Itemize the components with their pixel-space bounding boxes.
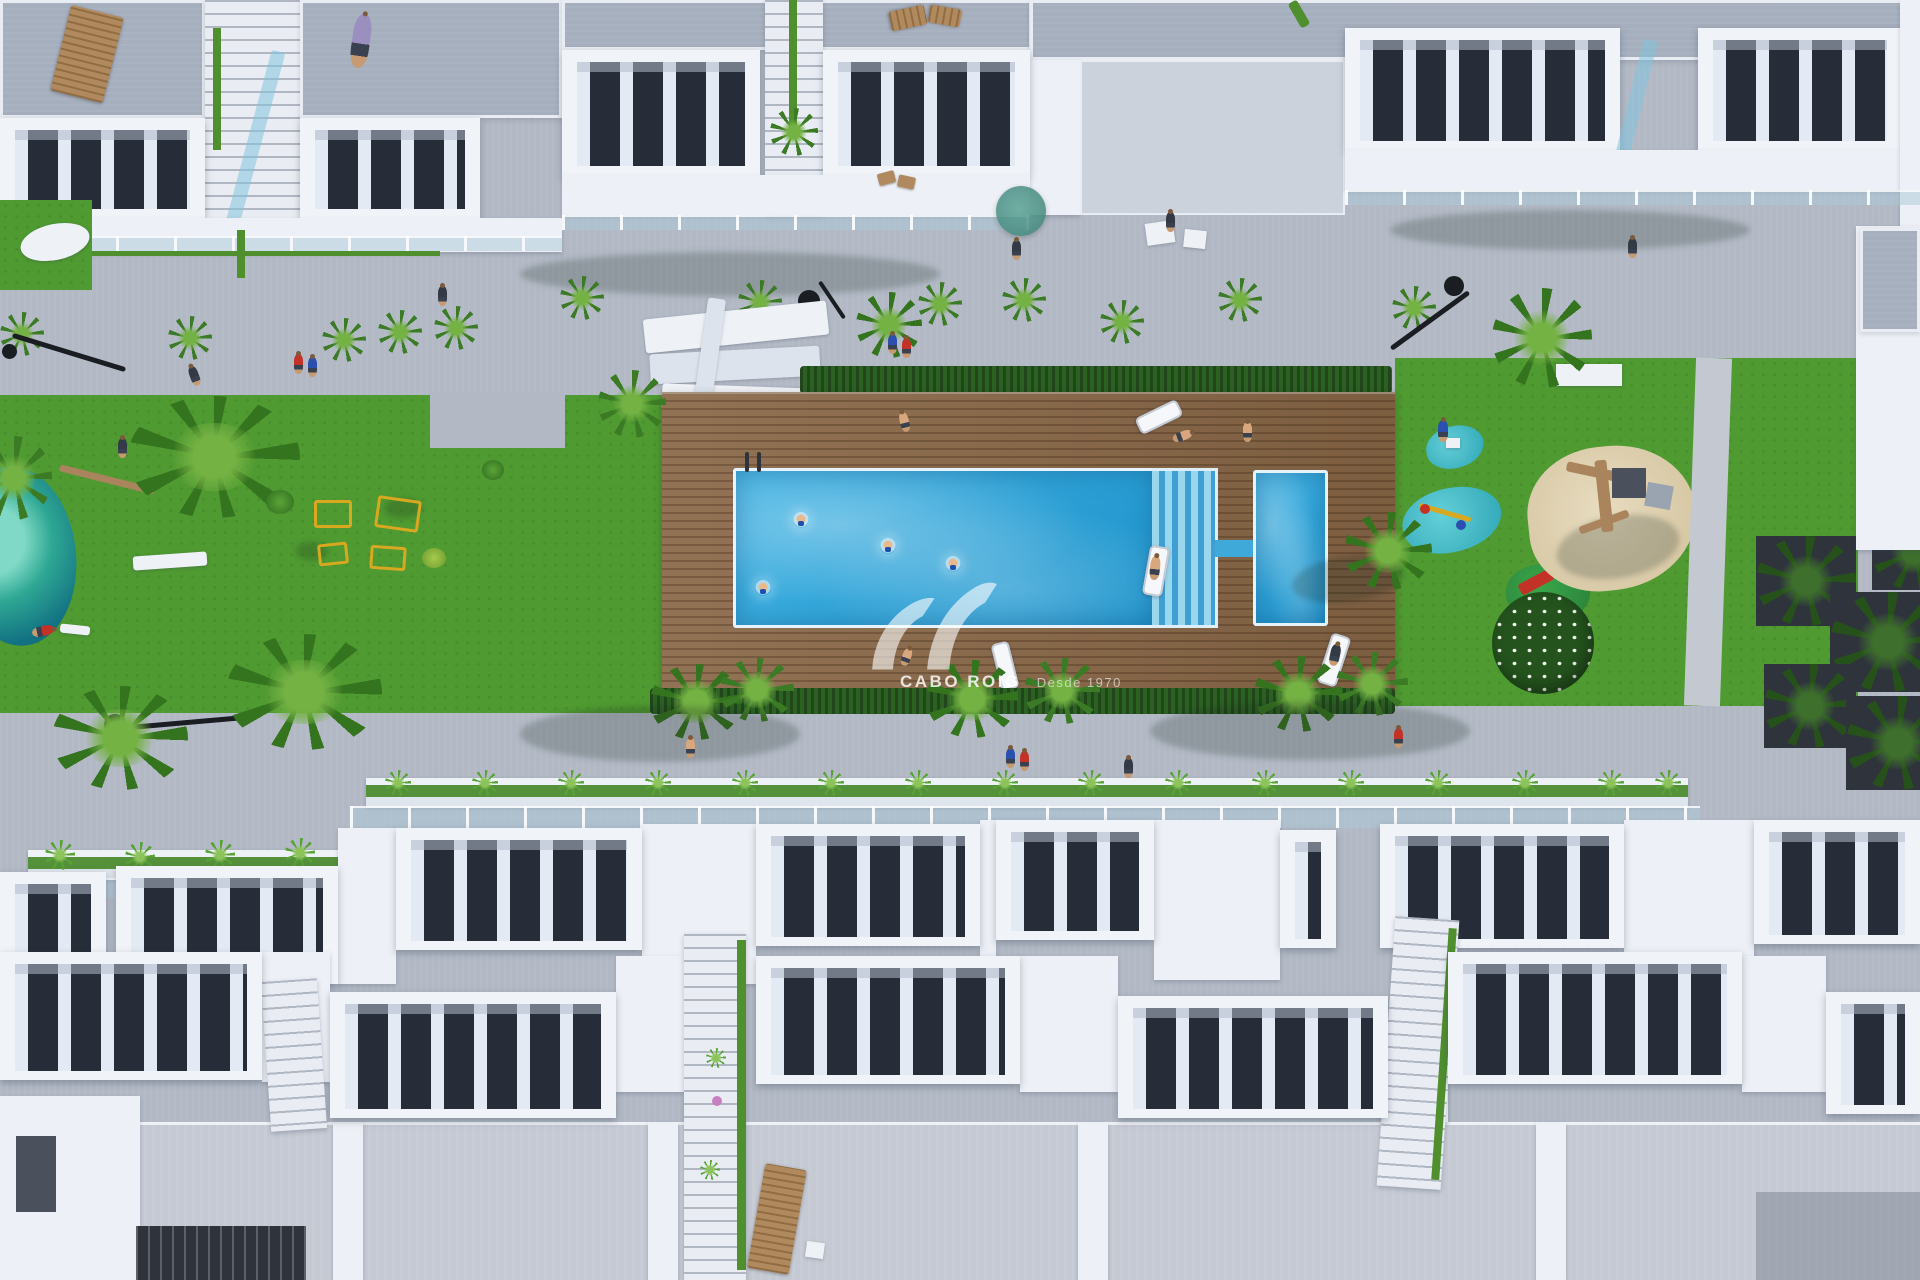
pedestrian (1394, 728, 1403, 748)
planter-palm (472, 770, 498, 796)
pedestrian (118, 438, 127, 458)
palm-bush (322, 318, 366, 362)
roof-terrace (1860, 228, 1920, 332)
planter-strip (213, 28, 221, 150)
person-on-bench (438, 286, 447, 306)
balcony (756, 956, 1020, 1084)
palm-bush (1100, 300, 1144, 344)
house-wall (616, 956, 684, 1092)
stairwell-steps (136, 1226, 306, 1280)
balcony (1754, 820, 1920, 944)
stairwell (16, 1136, 56, 1212)
parasol (996, 186, 1046, 236)
palm-bush (918, 282, 962, 326)
exercise-frame (314, 500, 352, 528)
palm-tree (1846, 696, 1920, 790)
shrub (422, 548, 446, 568)
house-wall (1742, 956, 1826, 1092)
palm-tree (52, 686, 188, 790)
planter-palm (285, 838, 315, 868)
pool-ladder (745, 452, 749, 472)
exercise-frame (317, 541, 349, 566)
balcony (1280, 830, 1336, 948)
exercise-frame (369, 545, 407, 571)
corner-shadow (1756, 1192, 1920, 1280)
swimmer (945, 556, 961, 572)
planter-palm (385, 770, 411, 796)
pool-ladder (757, 452, 761, 472)
balcony (1698, 28, 1902, 150)
balcony (1118, 996, 1388, 1118)
planter-palm (1252, 770, 1278, 796)
stair-plant (706, 1048, 726, 1068)
palm-tree (1492, 288, 1592, 388)
hedge (800, 366, 1392, 394)
house-wall (1020, 956, 1118, 1092)
pedestrian (1006, 748, 1015, 768)
planter-palm (1425, 770, 1451, 796)
palm-bush (434, 306, 478, 350)
building-base (562, 175, 1030, 215)
palm-top (770, 108, 818, 156)
aerial-render: CABO ROIG Desde 1970 (0, 0, 1920, 1280)
side-table (805, 1241, 825, 1259)
glass-railing (562, 215, 1030, 230)
house-wall (980, 820, 996, 970)
play-equipment (1446, 438, 1460, 448)
building-wall (1900, 0, 1920, 250)
planter-palm (905, 770, 931, 796)
balcony (396, 828, 642, 950)
planter-palm (992, 770, 1018, 796)
roof-terrace (300, 0, 562, 118)
planter-palm (1655, 770, 1681, 796)
upper-terrace (1080, 60, 1345, 215)
planter-palm (645, 770, 671, 796)
pedestrian (1012, 240, 1021, 260)
watermark: CABO ROIG Desde 1970 (858, 576, 1098, 692)
balcony (330, 992, 616, 1118)
balcony (823, 50, 1030, 175)
planter-strip (237, 230, 245, 278)
house-wall (1154, 820, 1280, 980)
planter-palm (1338, 770, 1364, 796)
palm-bush (1002, 278, 1046, 322)
pedestrian (1124, 758, 1133, 778)
patio-table (1183, 229, 1207, 249)
balcony (756, 824, 980, 946)
balcony (1826, 992, 1920, 1114)
building-shadow (1150, 702, 1470, 760)
walk-apron (430, 392, 565, 448)
pedestrian (1166, 212, 1175, 232)
street-lamp (1444, 276, 1464, 296)
flowering-tree (1492, 592, 1594, 694)
planter-palm (818, 770, 844, 796)
pedestrian (1243, 422, 1252, 442)
exercise-frame (374, 495, 422, 533)
palm-tree (1764, 664, 1856, 748)
planter-palm (558, 770, 584, 796)
brand-tagline: Desde 1970 (1037, 675, 1122, 690)
climbing-panel (1644, 482, 1674, 510)
swimmer (793, 512, 809, 528)
palm-bush (560, 276, 604, 320)
pool-channel (1215, 540, 1255, 557)
dividing-wall (1536, 1122, 1566, 1280)
nv-swoosh-icon (864, 576, 1014, 674)
planter-palm (1165, 770, 1191, 796)
palm-bush (168, 316, 212, 360)
balcony (1345, 28, 1620, 150)
palm-tree (0, 436, 52, 520)
pedestrian (1020, 751, 1029, 771)
stair-plant (700, 1160, 720, 1180)
shrub (482, 460, 504, 480)
climbing-panel (1612, 468, 1646, 498)
building-base (1345, 150, 1920, 190)
stair-planting (737, 940, 746, 1270)
kids-pool (1253, 470, 1328, 626)
palm-tree (598, 370, 666, 438)
balcony (0, 952, 262, 1080)
shrub (266, 490, 294, 514)
seesaw-seat (1456, 520, 1466, 530)
palm-bush (378, 310, 422, 354)
pedestrian (308, 357, 317, 377)
pedestrian (1438, 420, 1448, 442)
building-shadow (1390, 210, 1750, 250)
dividing-wall (333, 1122, 363, 1280)
planter-palm (45, 840, 75, 870)
house-wall (338, 828, 396, 984)
pedestrian (294, 354, 303, 374)
street-lamp (2, 344, 17, 359)
pedestrian (686, 738, 695, 758)
palm-tree (1344, 512, 1432, 590)
balcony (996, 820, 1154, 940)
glass-railing (1345, 190, 1920, 205)
flower (712, 1096, 722, 1106)
dividing-wall (1078, 1122, 1108, 1280)
planter-palm (732, 770, 758, 796)
swimmer (755, 580, 771, 596)
garden-staircase (261, 978, 327, 1132)
swimmer (880, 538, 896, 554)
pedestrian (888, 334, 897, 354)
building-shadow (520, 706, 800, 762)
watermark-text: CABO ROIG Desde 1970 (900, 672, 1098, 692)
palm-tree (226, 634, 382, 750)
planter-palm (1512, 770, 1538, 796)
pedestrian (1628, 238, 1637, 258)
balcony (300, 118, 480, 218)
balcony (1448, 952, 1742, 1084)
planter-palm (1078, 770, 1104, 796)
pedestrian (902, 338, 911, 358)
brand-name: CABO ROIG (900, 672, 1021, 692)
planter-palm (1598, 770, 1624, 796)
balcony (562, 50, 760, 175)
palm-bush (1218, 278, 1262, 322)
dividing-wall (648, 1122, 678, 1280)
